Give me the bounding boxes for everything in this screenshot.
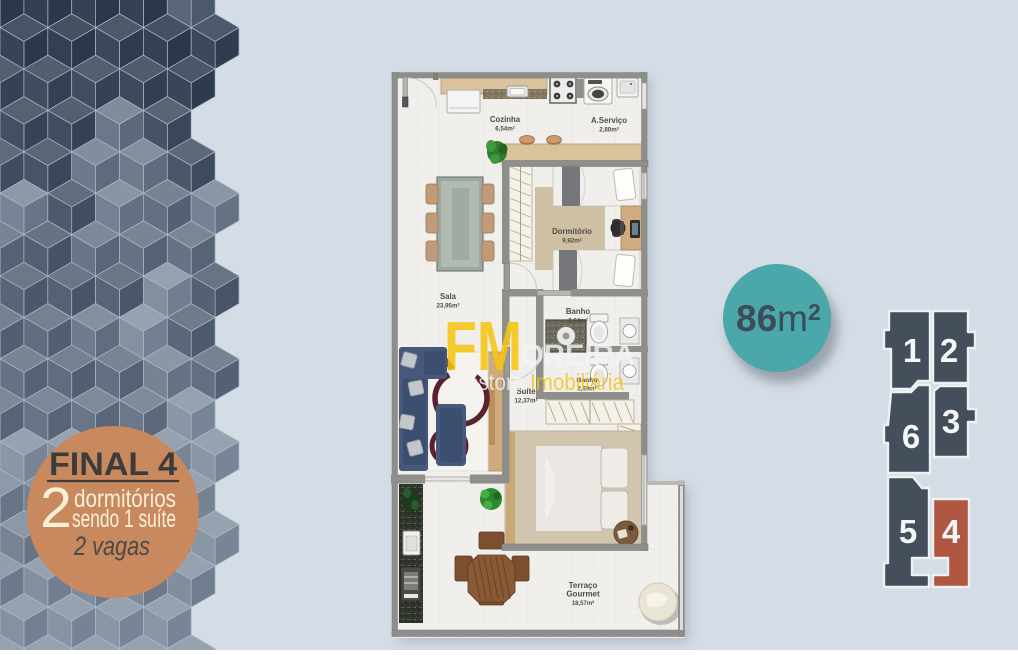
svg-text:4: 4: [942, 513, 961, 550]
svg-text:Gestora Imobiliária: Gestora Imobiliária: [451, 369, 624, 395]
svg-text:18,57m²: 18,57m²: [572, 600, 594, 607]
svg-text:sendo 1 suíte: sendo 1 suíte: [72, 505, 176, 533]
svg-text:Cozinha: Cozinha: [490, 115, 521, 124]
svg-text:6,54m²: 6,54m²: [495, 126, 515, 133]
svg-text:2: 2: [40, 476, 72, 540]
svg-text:A.Serviço: A.Serviço: [591, 116, 627, 125]
svg-text:2,80m²: 2,80m²: [599, 127, 619, 134]
svg-text:Sala: Sala: [440, 292, 457, 301]
svg-text:2 vagas: 2 vagas: [73, 531, 150, 561]
svg-text:5: 5: [899, 513, 917, 550]
svg-text:OREIRA: OREIRA: [521, 339, 635, 372]
svg-text:2: 2: [940, 332, 958, 369]
svg-text:3: 3: [942, 403, 960, 440]
svg-text:6: 6: [902, 418, 920, 455]
svg-text:Gourmet: Gourmet: [566, 590, 600, 599]
svg-text:1: 1: [903, 332, 921, 369]
svg-text:9,92m²: 9,92m²: [562, 238, 582, 245]
svg-text:2,64m²: 2,64m²: [568, 318, 588, 325]
svg-text:12,37m²: 12,37m²: [514, 398, 537, 405]
svg-text:Dormitório: Dormitório: [552, 227, 592, 236]
svg-text:Banho: Banho: [566, 307, 590, 316]
